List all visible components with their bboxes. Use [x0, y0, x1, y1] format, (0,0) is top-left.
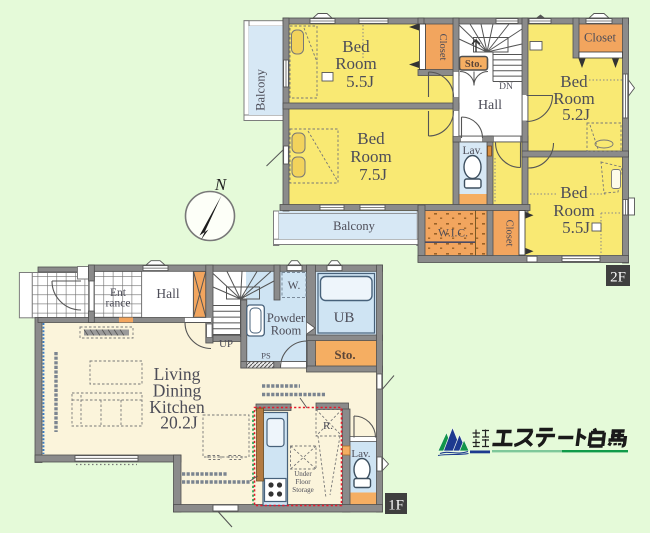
svg-text:20.2J: 20.2J [160, 413, 198, 433]
svg-text:Bed: Bed [560, 183, 588, 202]
svg-text:Balcony: Balcony [254, 68, 268, 110]
svg-text:W.: W. [288, 280, 301, 292]
svg-text:5.5J: 5.5J [346, 72, 374, 91]
svg-text:Balcony: Balcony [333, 219, 375, 233]
svg-text:Lav.: Lav. [462, 145, 482, 157]
svg-text:Room: Room [335, 54, 377, 73]
svg-text:N: N [214, 175, 228, 194]
svg-text:R.: R. [323, 420, 333, 432]
svg-text:Hall: Hall [156, 286, 179, 301]
svg-text:PS: PS [261, 351, 271, 361]
svg-text:rance: rance [106, 298, 131, 310]
svg-text:2F: 2F [610, 270, 626, 286]
svg-text:Floor: Floor [295, 478, 311, 486]
svg-text:Closet: Closet [437, 34, 448, 61]
svg-text:Under: Under [294, 470, 312, 478]
svg-text:UB: UB [334, 310, 355, 326]
svg-text:5.2J: 5.2J [562, 105, 590, 124]
svg-text:Room: Room [350, 147, 392, 166]
svg-text:Closet: Closet [504, 220, 515, 247]
svg-text:7.5J: 7.5J [359, 165, 387, 184]
svg-text:Sto.: Sto. [465, 59, 483, 70]
svg-text:UP: UP [219, 338, 233, 350]
svg-text:DN: DN [499, 82, 513, 92]
svg-text:5.5J: 5.5J [562, 218, 590, 237]
svg-text:Storage: Storage [292, 486, 313, 494]
svg-text:Bed: Bed [357, 129, 385, 148]
svg-text:Hall: Hall [478, 98, 502, 113]
svg-text:Closet: Closet [584, 31, 616, 45]
svg-text:1F: 1F [388, 498, 404, 514]
svg-text:W.I.C.: W.I.C. [438, 228, 468, 240]
svg-text:Lav.: Lav. [351, 448, 370, 460]
svg-text:Sto.: Sto. [334, 347, 355, 362]
svg-text:Room: Room [271, 324, 302, 338]
